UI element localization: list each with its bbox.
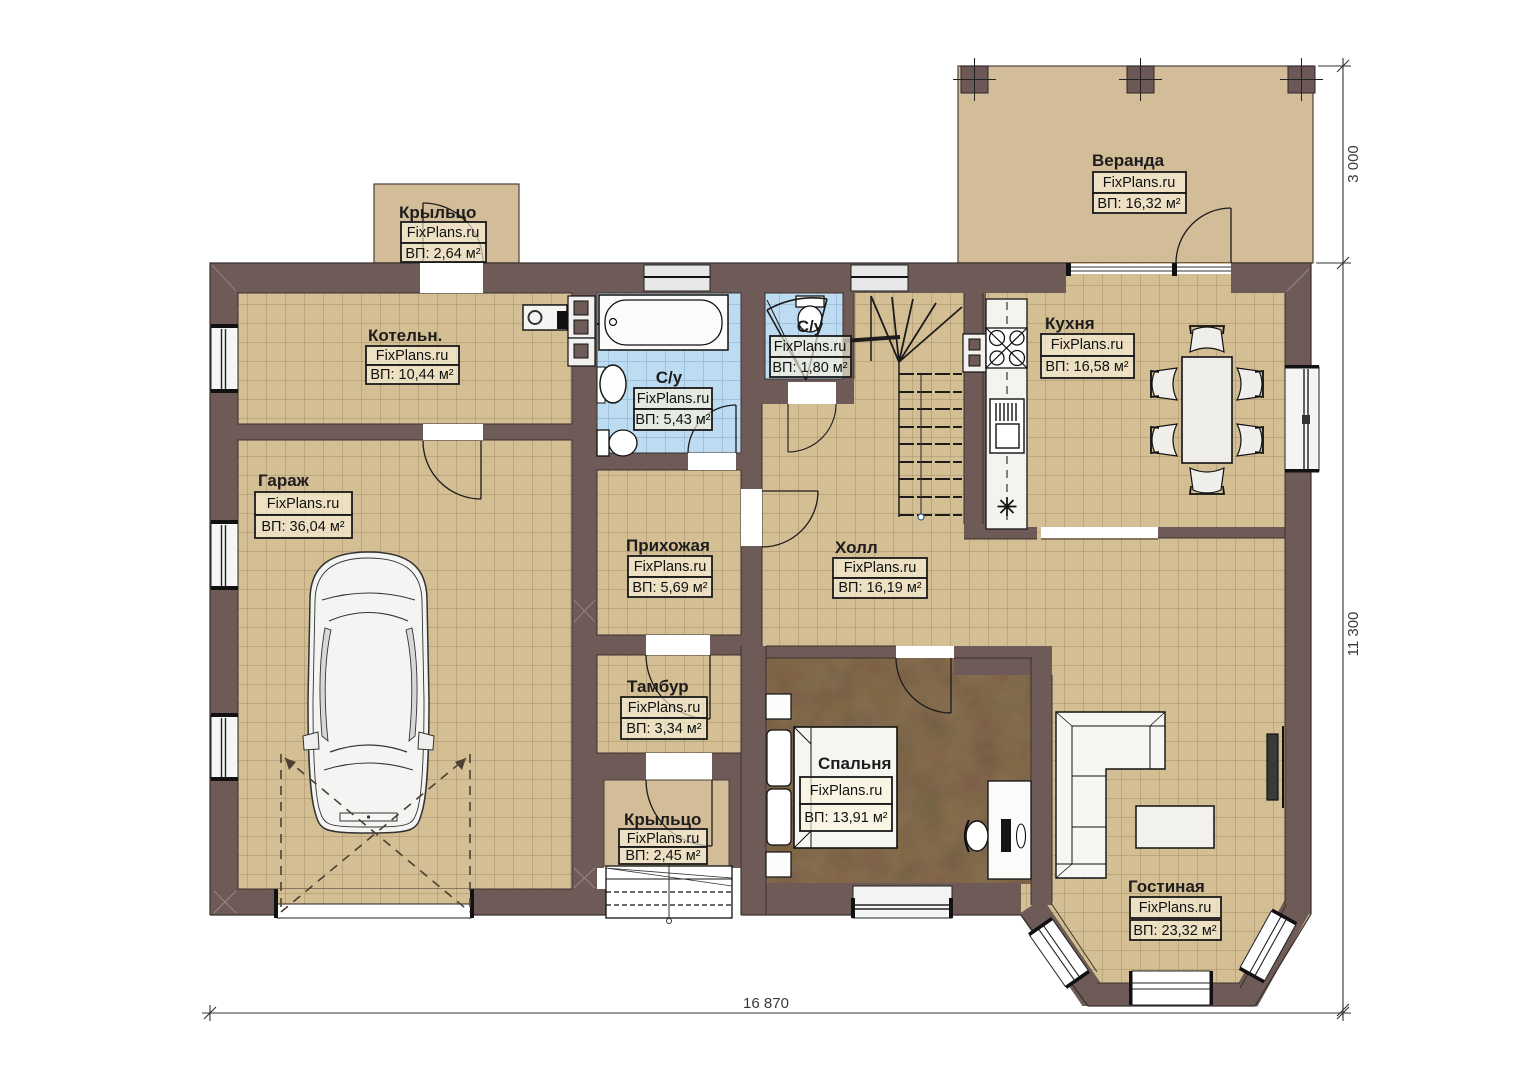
svg-text:FixPlans.ru: FixPlans.ru bbox=[376, 348, 449, 364]
svg-text:FixPlans.ru: FixPlans.ru bbox=[267, 496, 340, 512]
svg-text:Крыльцо: Крыльцо bbox=[399, 203, 476, 222]
svg-text:Крыльцо: Крыльцо bbox=[624, 810, 701, 829]
svg-text:С/у: С/у bbox=[656, 368, 683, 387]
svg-text:Спальня: Спальня bbox=[818, 754, 891, 773]
svg-text:FixPlans.ru: FixPlans.ru bbox=[844, 560, 917, 576]
svg-text:FixPlans.ru: FixPlans.ru bbox=[628, 700, 701, 716]
svg-text:ВП: 16,58 м²: ВП: 16,58 м² bbox=[1045, 359, 1128, 375]
svg-text:ВП: 13,91 м²: ВП: 13,91 м² bbox=[804, 810, 887, 826]
svg-text:ВП: 36,04 м²: ВП: 36,04 м² bbox=[261, 519, 344, 535]
svg-text:FixPlans.ru: FixPlans.ru bbox=[627, 831, 700, 847]
svg-text:Котельн.: Котельн. bbox=[368, 326, 442, 345]
svg-text:Гостиная: Гостиная bbox=[1128, 877, 1205, 896]
svg-text:FixPlans.ru: FixPlans.ru bbox=[774, 339, 847, 355]
svg-text:3 000: 3 000 bbox=[1345, 145, 1362, 183]
svg-text:ВП: 23,32 м²: ВП: 23,32 м² bbox=[1133, 923, 1216, 939]
svg-text:ВП: 5,69 м²: ВП: 5,69 м² bbox=[632, 580, 707, 596]
svg-text:FixPlans.ru: FixPlans.ru bbox=[810, 783, 883, 799]
svg-text:11 300: 11 300 bbox=[1345, 612, 1362, 657]
svg-text:FixPlans.ru: FixPlans.ru bbox=[407, 225, 480, 241]
svg-text:ВП: 10,44 м²: ВП: 10,44 м² bbox=[370, 367, 453, 383]
svg-text:FixPlans.ru: FixPlans.ru bbox=[1103, 175, 1176, 191]
svg-text:Тамбур: Тамбур bbox=[627, 677, 689, 696]
svg-text:ВП: 2,64 м²: ВП: 2,64 м² bbox=[405, 246, 480, 262]
svg-text:FixPlans.ru: FixPlans.ru bbox=[1051, 337, 1124, 353]
svg-text:16 870: 16 870 bbox=[743, 995, 789, 1012]
svg-text:ВП: 16,32 м²: ВП: 16,32 м² bbox=[1097, 196, 1180, 212]
svg-text:ВП: 2,45 м²: ВП: 2,45 м² bbox=[625, 848, 700, 864]
svg-text:ВП: 16,19 м²: ВП: 16,19 м² bbox=[838, 580, 921, 596]
svg-text:Гараж: Гараж bbox=[258, 471, 310, 490]
svg-text:ВП: 3,34 м²: ВП: 3,34 м² bbox=[626, 721, 701, 737]
svg-text:Веранда: Веранда bbox=[1092, 151, 1165, 170]
svg-text:Прихожая: Прихожая bbox=[626, 536, 710, 555]
svg-text:FixPlans.ru: FixPlans.ru bbox=[634, 559, 707, 575]
svg-text:FixPlans.ru: FixPlans.ru bbox=[637, 391, 710, 407]
svg-text:ВП: 1,80 м²: ВП: 1,80 м² bbox=[772, 360, 847, 376]
svg-text:С/у: С/у bbox=[797, 317, 824, 336]
svg-text:Холл: Холл bbox=[835, 538, 878, 557]
svg-text:Кухня: Кухня bbox=[1045, 314, 1095, 333]
svg-text:FixPlans.ru: FixPlans.ru bbox=[1139, 900, 1212, 916]
svg-text:ВП: 5,43 м²: ВП: 5,43 м² bbox=[635, 412, 710, 428]
